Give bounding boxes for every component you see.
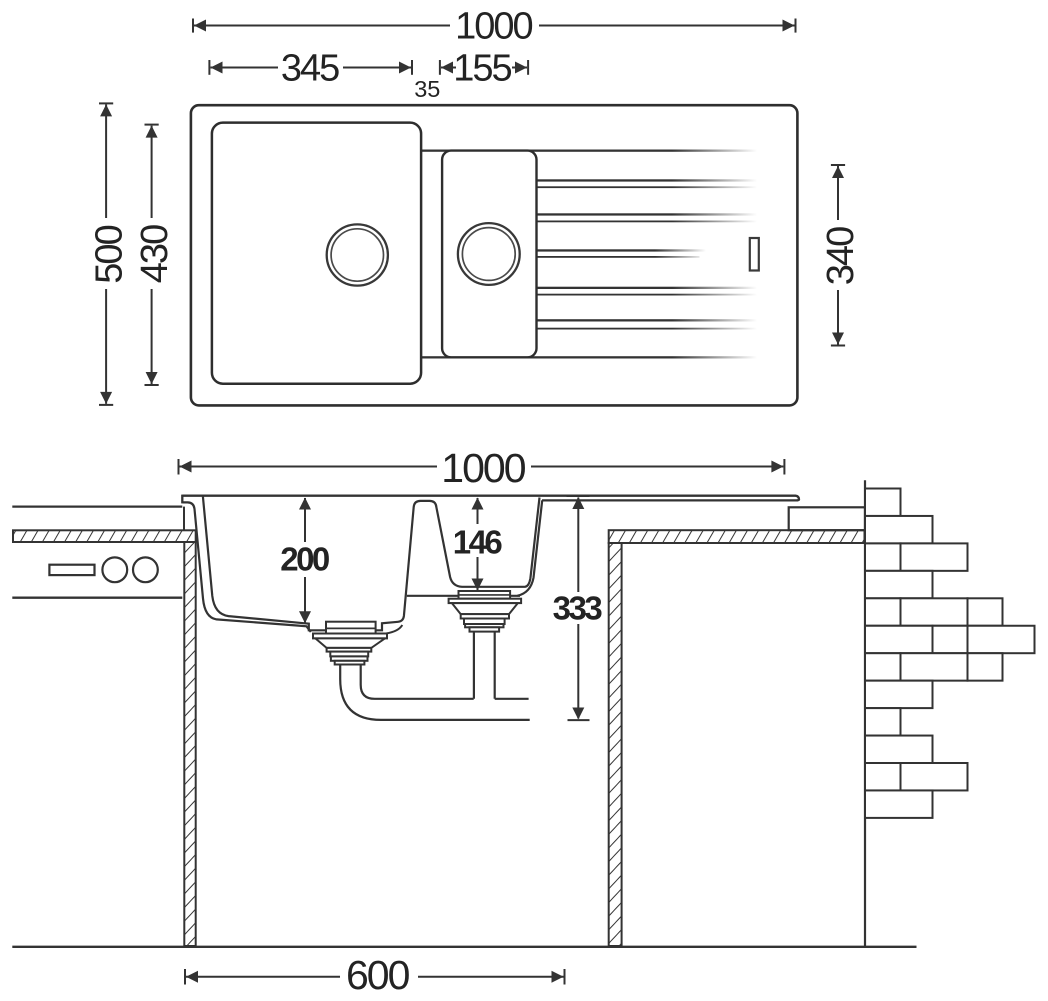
svg-text:146: 146 [453, 523, 503, 560]
svg-text:333: 333 [553, 590, 603, 627]
svg-text:1000: 1000 [455, 5, 532, 47]
svg-text:600: 600 [346, 952, 410, 998]
svg-text:155: 155 [453, 47, 511, 89]
svg-text:200: 200 [280, 541, 329, 578]
svg-text:500: 500 [88, 225, 130, 283]
svg-text:35: 35 [414, 76, 440, 102]
svg-text:340: 340 [820, 227, 862, 285]
svg-text:345: 345 [281, 47, 339, 89]
svg-text:430: 430 [134, 225, 176, 283]
svg-text:1000: 1000 [441, 445, 525, 491]
